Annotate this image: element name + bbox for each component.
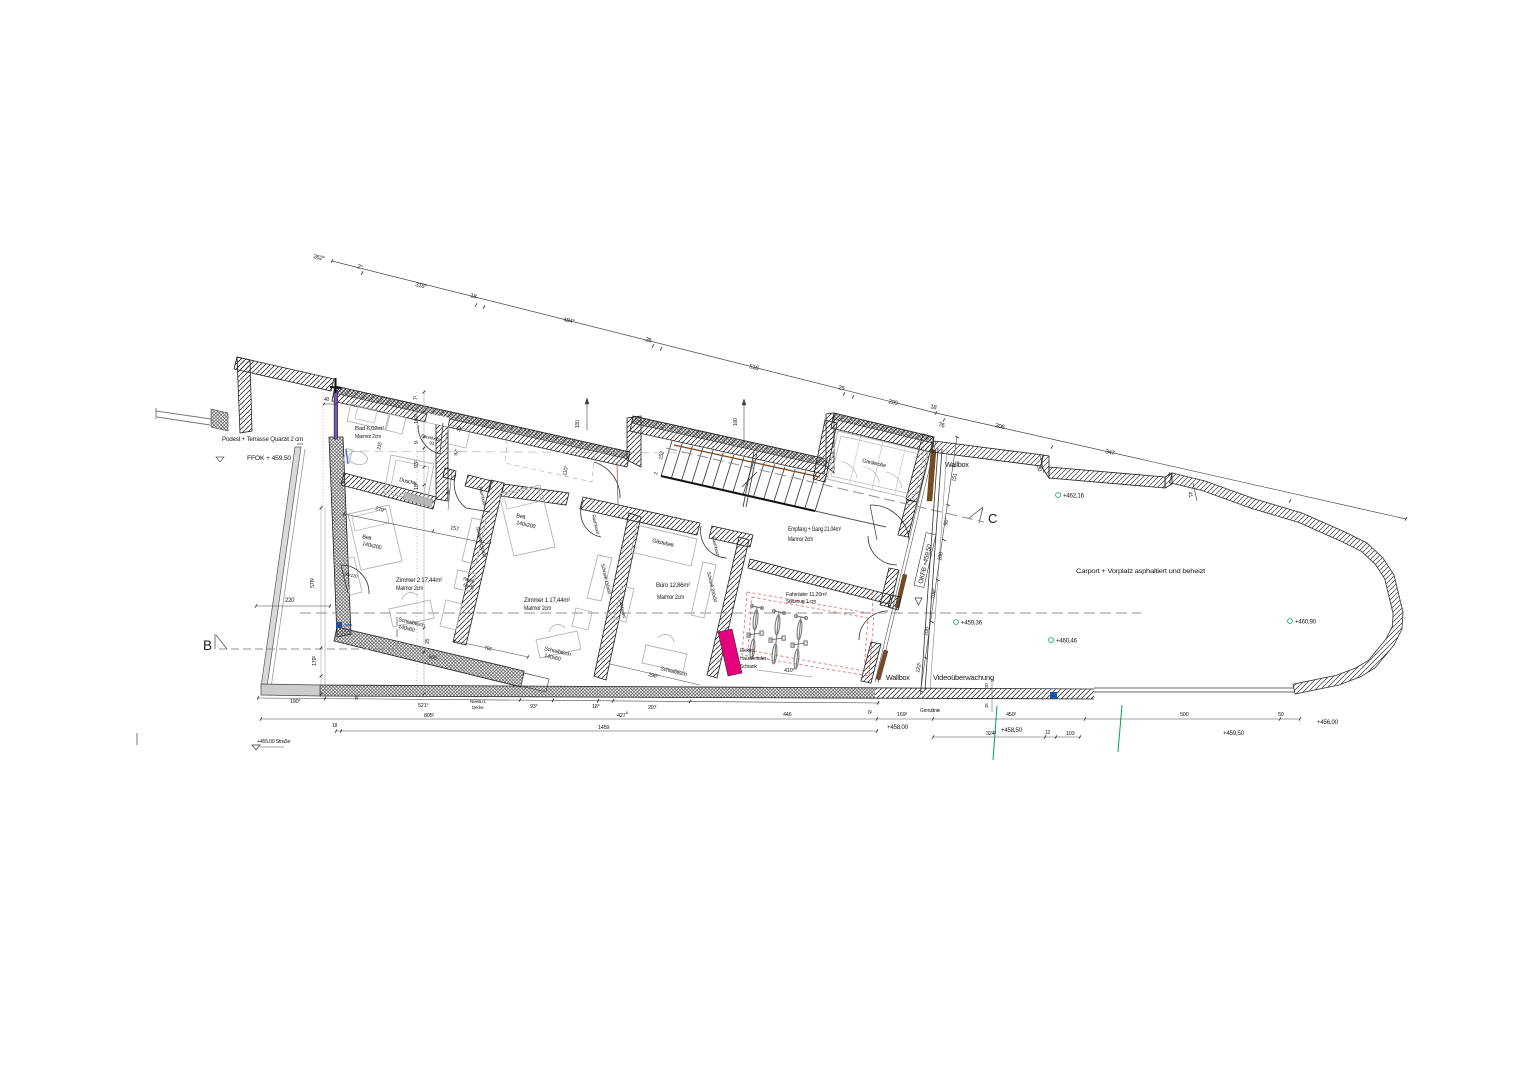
svg-text:Bad 6,02m²: Bad 6,02m² xyxy=(355,426,384,432)
svg-text:Marmor 2cm: Marmor 2cm xyxy=(524,606,551,612)
svg-text:Schrank: Schrank xyxy=(740,664,757,670)
svg-text:40: 40 xyxy=(324,397,330,403)
svg-text:6²: 6² xyxy=(868,710,873,716)
svg-text:Wallbox: Wallbox xyxy=(945,460,969,469)
svg-text:25: 25 xyxy=(984,703,989,708)
svg-text:7²: 7² xyxy=(413,395,419,400)
svg-text:410°: 410° xyxy=(784,668,794,674)
svg-text:Carport + Vorplatz asphaltiert: Carport + Vorplatz asphaltiert und behei… xyxy=(1076,568,1205,575)
svg-text:Empfang + Gang 21,04m²: Empfang + Gang 21,04m² xyxy=(788,526,841,533)
svg-text:12: 12 xyxy=(1045,730,1051,736)
svg-text:6: 6 xyxy=(626,711,628,715)
svg-text:Elektro: Elektro xyxy=(740,648,754,654)
svg-text:Wallbox: Wallbox xyxy=(886,673,910,682)
svg-text:169²: 169² xyxy=(897,712,907,718)
svg-text:+455,00 Straße: +455,00 Straße xyxy=(257,739,290,745)
svg-text:Fahrräder 11,20m²: Fahrräder 11,20m² xyxy=(786,592,827,598)
svg-text:Videoüberwachung: Videoüberwachung xyxy=(933,673,994,682)
svg-text:+459,50: +459,50 xyxy=(1223,730,1245,737)
svg-text:Podest + Terrasse Quarzit 2 cm: Podest + Terrasse Quarzit 2 cm xyxy=(222,436,304,443)
svg-text:Marmor 2cm: Marmor 2cm xyxy=(657,595,684,601)
svg-text:Marmor 2cm: Marmor 2cm xyxy=(396,586,423,592)
svg-text:576²: 576² xyxy=(310,578,316,588)
svg-text:18°: 18° xyxy=(592,704,600,710)
svg-text:+462,16: +462,16 xyxy=(1063,493,1085,500)
svg-text:20: 20 xyxy=(984,683,989,688)
svg-text:+458,00: +458,00 xyxy=(887,724,909,731)
svg-text:Büro 12,86m²: Büro 12,86m² xyxy=(656,583,690,589)
svg-text:Marmor 2cm: Marmor 2cm xyxy=(788,536,813,543)
svg-text:102²: 102² xyxy=(414,414,420,424)
svg-text:25: 25 xyxy=(354,695,359,700)
svg-text:93°: 93° xyxy=(530,704,538,710)
svg-text:FFOK + 459,50: FFOK + 459,50 xyxy=(247,455,292,462)
svg-text:500: 500 xyxy=(1180,712,1189,718)
svg-text:50: 50 xyxy=(1278,712,1284,718)
svg-text:C: C xyxy=(988,511,997,526)
svg-text:9: 9 xyxy=(414,441,420,444)
svg-text:100: 100 xyxy=(575,420,581,428)
svg-text:+460,90: +460,90 xyxy=(1295,619,1317,626)
svg-text:Hausverteiler-: Hausverteiler- xyxy=(740,656,768,662)
svg-text:1459: 1459 xyxy=(598,725,609,731)
svg-text:Niveau 1: Niveau 1 xyxy=(470,699,487,704)
svg-text:427: 427 xyxy=(617,713,626,719)
svg-text:Zimmer 1 17,44m²: Zimmer 1 17,44m² xyxy=(524,598,570,604)
svg-text:+456,00: +456,00 xyxy=(1317,719,1339,726)
svg-text:+459,36: +459,36 xyxy=(961,620,983,627)
svg-text:Zimmer 2 17,44m²: Zimmer 2 17,44m² xyxy=(396,578,442,584)
svg-text:446: 446 xyxy=(783,712,792,718)
svg-text:+460,46: +460,46 xyxy=(1056,638,1078,645)
svg-text:Marmor 2cm: Marmor 2cm xyxy=(355,434,381,440)
svg-text:Decke: Decke xyxy=(472,705,484,710)
svg-text:B: B xyxy=(203,638,212,653)
svg-text:521°: 521° xyxy=(418,703,428,709)
svg-text:103: 103 xyxy=(1066,731,1075,737)
svg-text:18: 18 xyxy=(332,723,338,729)
svg-text:18²: 18² xyxy=(414,482,420,490)
svg-text:324³: 324³ xyxy=(986,731,996,737)
svg-text:190°: 190° xyxy=(290,699,300,705)
svg-text:220: 220 xyxy=(285,598,295,604)
svg-text:100: 100 xyxy=(733,418,739,426)
svg-text:+458,50: +458,50 xyxy=(1001,727,1023,734)
svg-text:459²: 459² xyxy=(1006,712,1016,718)
svg-text:297: 297 xyxy=(648,705,657,711)
svg-text:93²: 93² xyxy=(414,460,420,468)
svg-text:805²: 805² xyxy=(424,713,434,719)
svg-text:Grenzlinie: Grenzlinie xyxy=(920,708,940,714)
svg-text:Stelzeug 1 cm: Stelzeug 1 cm xyxy=(786,599,817,605)
svg-text:25: 25 xyxy=(425,638,431,644)
svg-text:179²: 179² xyxy=(312,656,318,666)
